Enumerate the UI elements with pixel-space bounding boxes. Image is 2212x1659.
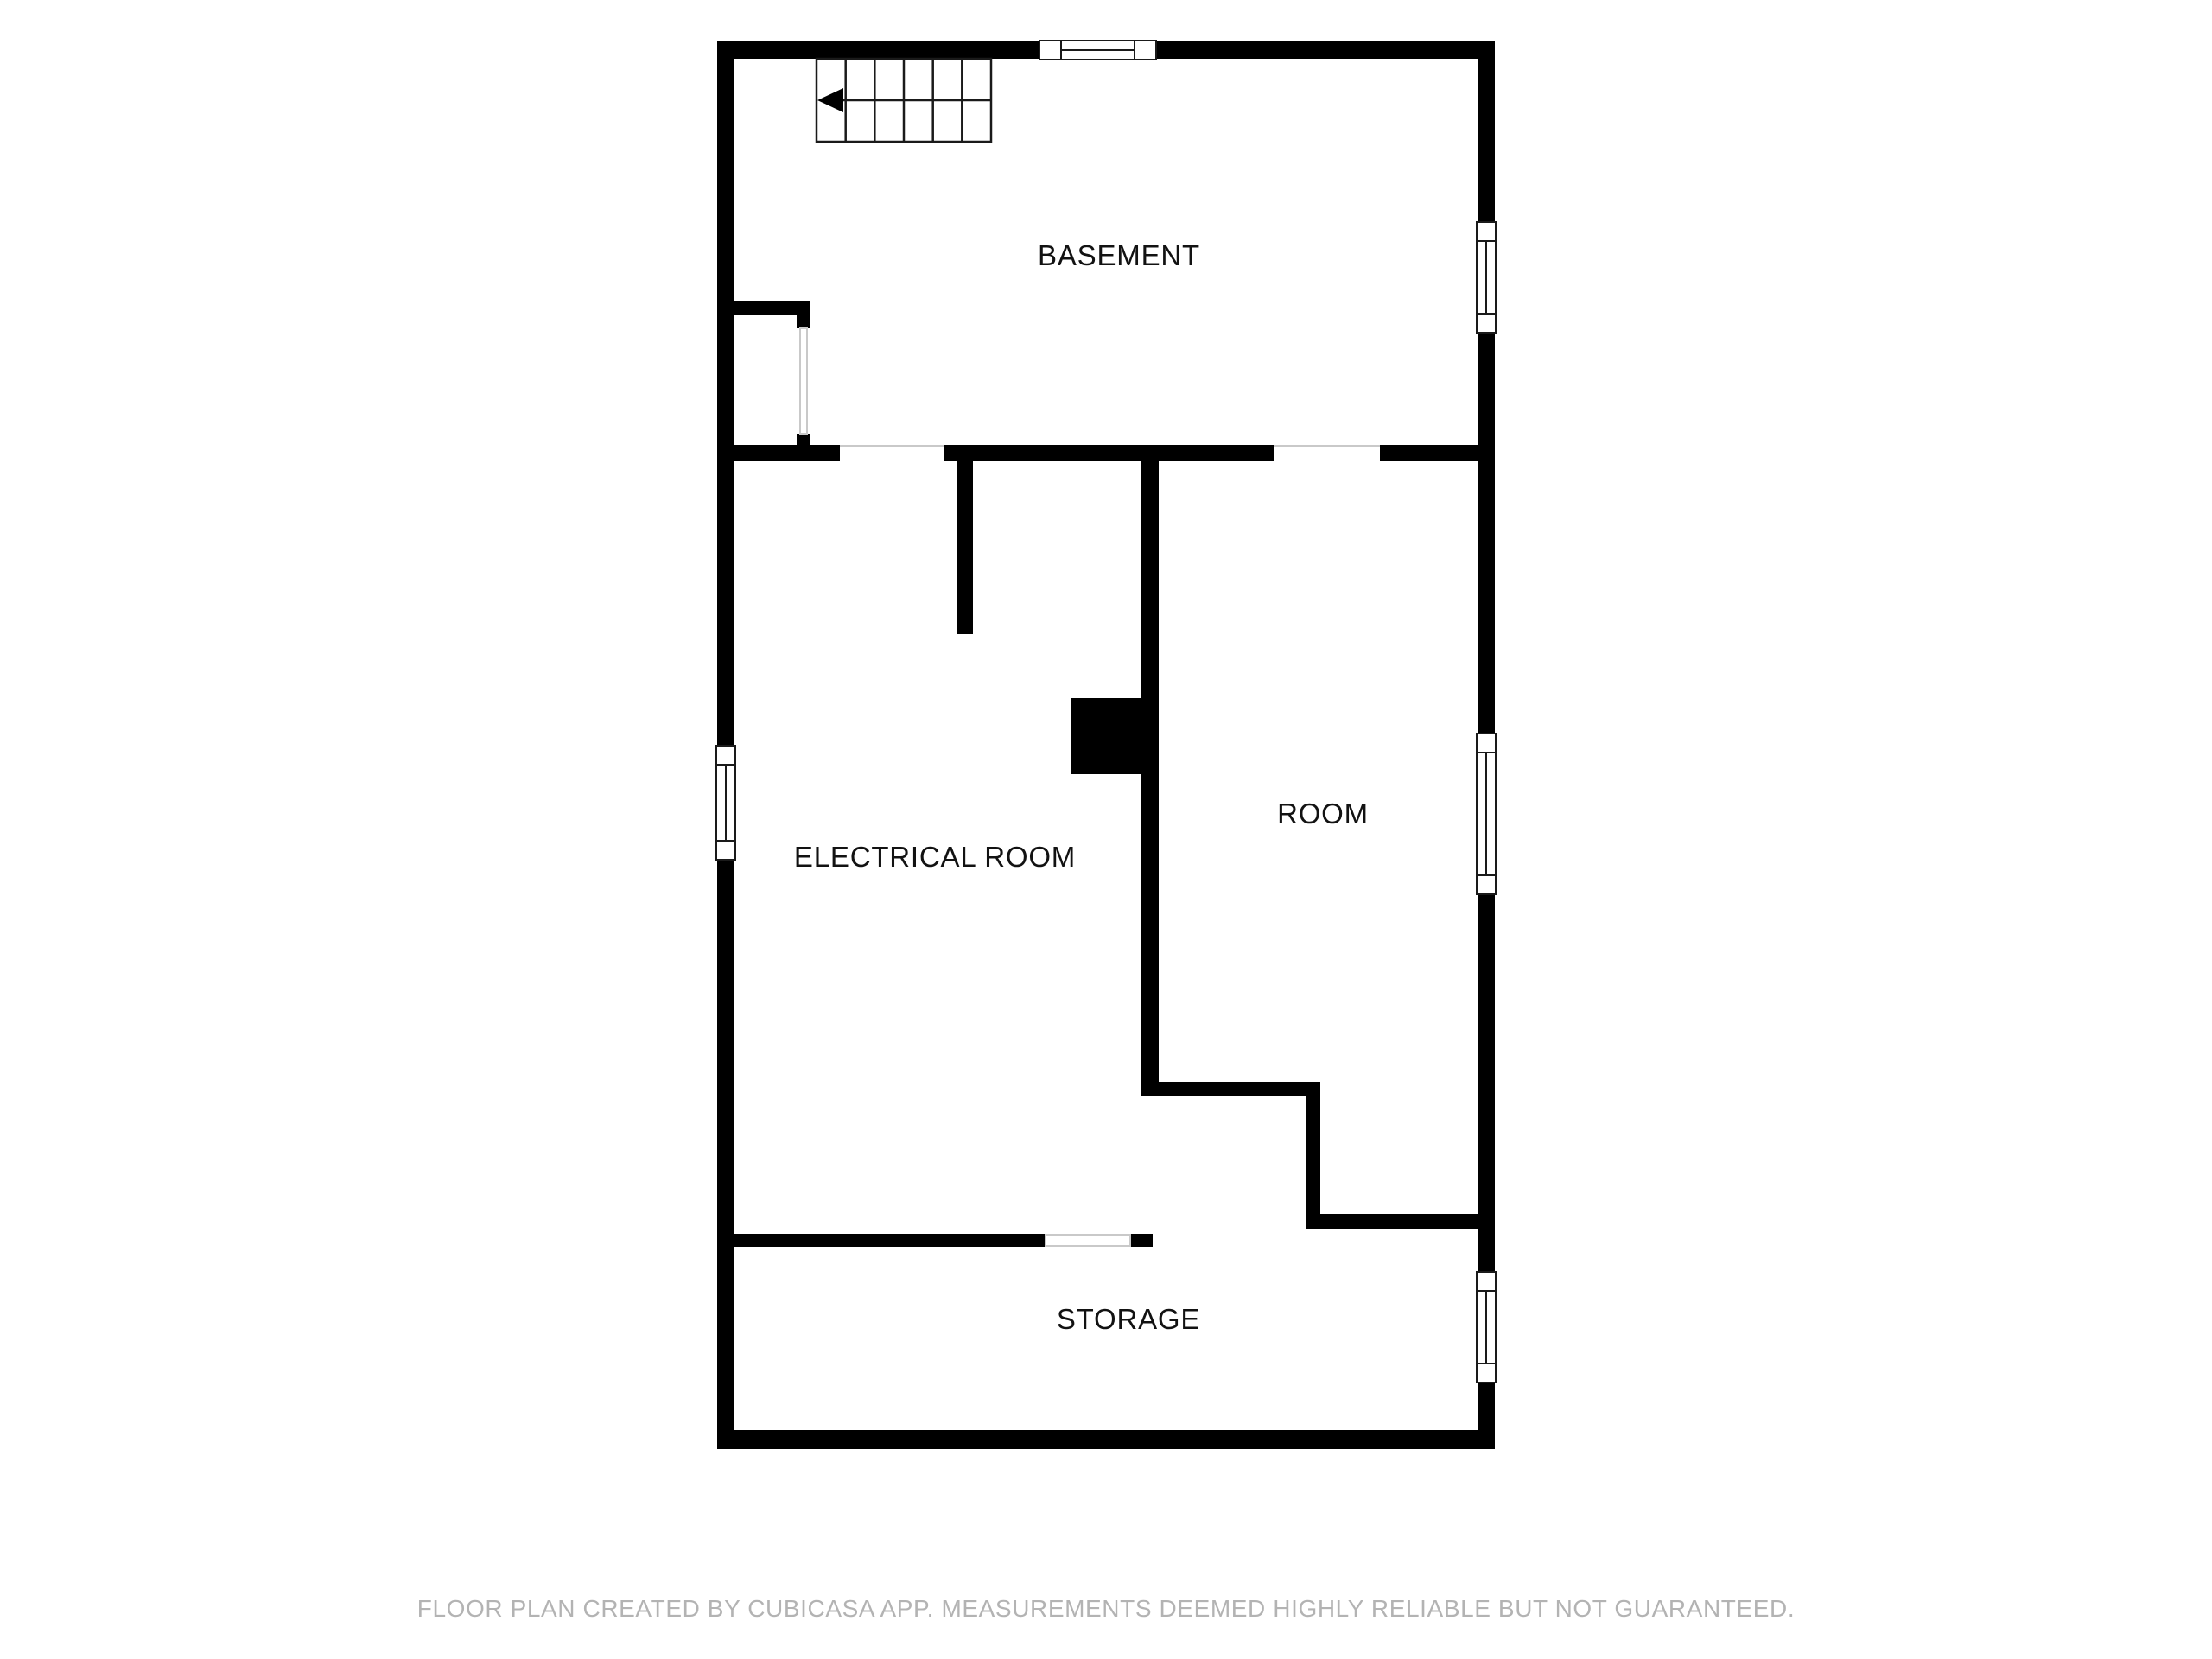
wall-basement-divider-middle [944,445,1274,461]
wall-storage-top-stub [1130,1234,1153,1247]
staircase [817,59,991,142]
wall-step-vert [1306,1082,1320,1229]
room-label-electrical-room: ELECTRICAL ROOM [794,841,1076,874]
wall-basement-divider-left [733,445,840,461]
window-storage-right [1477,1272,1496,1382]
wall-outer-bottom [717,1430,1495,1449]
opening-storage-door [1046,1235,1130,1246]
window-basement-top [1039,41,1156,60]
floor-plan: BASEMENT ELECTRICAL ROOM ROOM STORAGE FL… [0,0,2212,1659]
wall-room-left [1141,445,1159,1096]
wall-nook-jamb-top [797,301,810,328]
footer-disclaimer: FLOOR PLAN CREATED BY CUBICASA APP. MEAS… [0,1595,2212,1623]
wall-step-horiz [1141,1082,1320,1096]
chimney [1071,698,1141,774]
wall-storage-top [733,1234,1046,1247]
room-label-basement: BASEMENT [1038,239,1200,272]
door-openings [800,328,1380,1246]
room-label-room: ROOM [1277,798,1369,830]
wall-nook-jamb-bottom [797,434,810,461]
window-basement-right [1477,222,1496,333]
window-electrical-left [716,746,735,860]
page: { "floor_plan": { "rooms": { "basement":… [0,0,2212,1659]
wall-interior-stub [957,445,973,634]
wall-basement-divider-right [1380,445,1479,461]
room-label-storage: STORAGE [1057,1303,1200,1336]
wall-room-bottom [1306,1214,1495,1229]
window-room-right [1477,734,1496,894]
opening-nook-door [800,328,807,434]
